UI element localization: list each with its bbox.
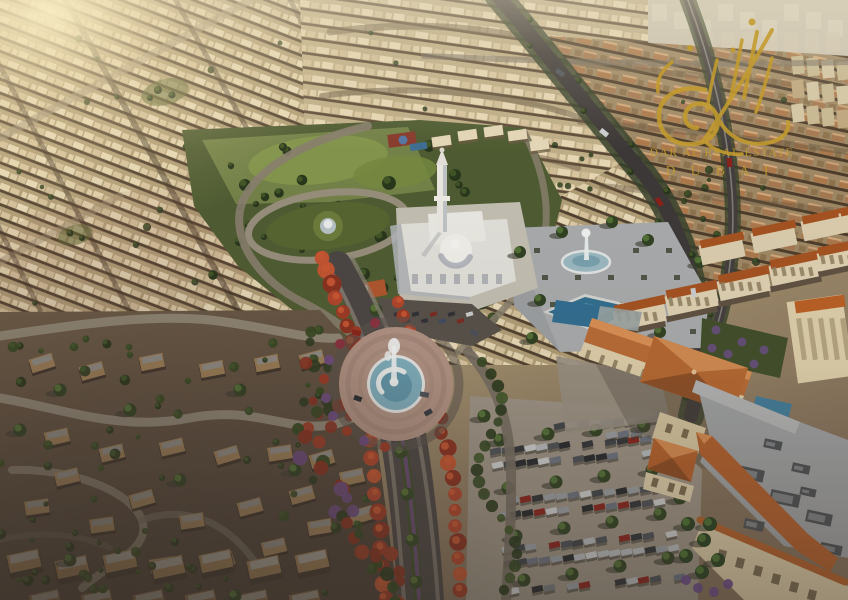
svg-text:DAR AL REAL ESTATE: DAR AL REAL ESTATE (650, 147, 794, 159)
svg-text:D U B A I: D U B A I (666, 163, 775, 178)
